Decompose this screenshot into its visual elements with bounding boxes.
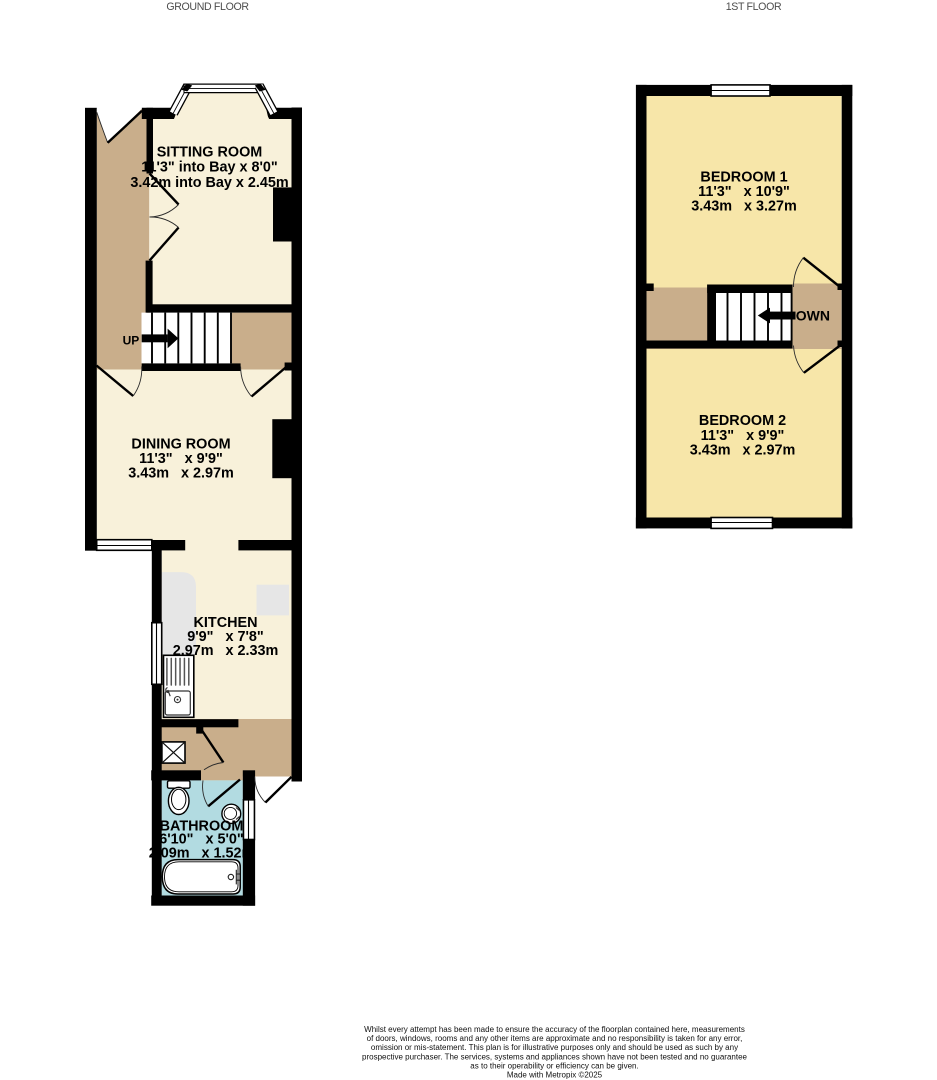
- svg-text:Made with Metropix ©2025: Made with Metropix ©2025: [507, 1071, 603, 1080]
- svg-text:2.09m x 1.52m: 2.09m x 1.52m: [149, 845, 255, 861]
- svg-text:prospective purchaser. The ser: prospective purchaser. The services, sys…: [362, 1052, 748, 1061]
- svg-text:UP: UP: [123, 333, 140, 347]
- svg-text:3.43m x 3.27m: 3.43m x 3.27m: [691, 198, 797, 214]
- svg-text:DINING ROOM: DINING ROOM: [131, 437, 230, 453]
- svg-text:2.97m x 2.33m: 2.97m x 2.33m: [173, 643, 279, 659]
- svg-text:OWN: OWN: [796, 307, 830, 323]
- svg-text:11'3" into Bay x 8'0": 11'3" into Bay x 8'0": [141, 160, 277, 176]
- svg-text:GROUND FLOOR: GROUND FLOOR: [166, 1, 249, 13]
- svg-text:3.43m x 2.97m: 3.43m x 2.97m: [690, 442, 796, 458]
- svg-text:BEDROOM 2: BEDROOM 2: [699, 413, 786, 429]
- svg-text:3.43m x 2.97m: 3.43m x 2.97m: [128, 466, 234, 482]
- svg-text:SITTING ROOM: SITTING ROOM: [157, 145, 263, 161]
- svg-text:Whilst every attempt has been: Whilst every attempt has been made to en…: [364, 1025, 745, 1034]
- svg-text:3.42m into Bay x 2.45m: 3.42m into Bay x 2.45m: [130, 175, 288, 191]
- svg-text:omission or mis-statement. Thi: omission or mis-statement. This plan is …: [371, 1043, 738, 1052]
- svg-text:of doors, windows, rooms and a: of doors, windows, rooms and any other i…: [367, 1034, 743, 1043]
- svg-text:as to their operability or eff: as to their operability or efficiency ca…: [470, 1062, 638, 1071]
- svg-text:1ST FLOOR: 1ST FLOOR: [726, 1, 782, 13]
